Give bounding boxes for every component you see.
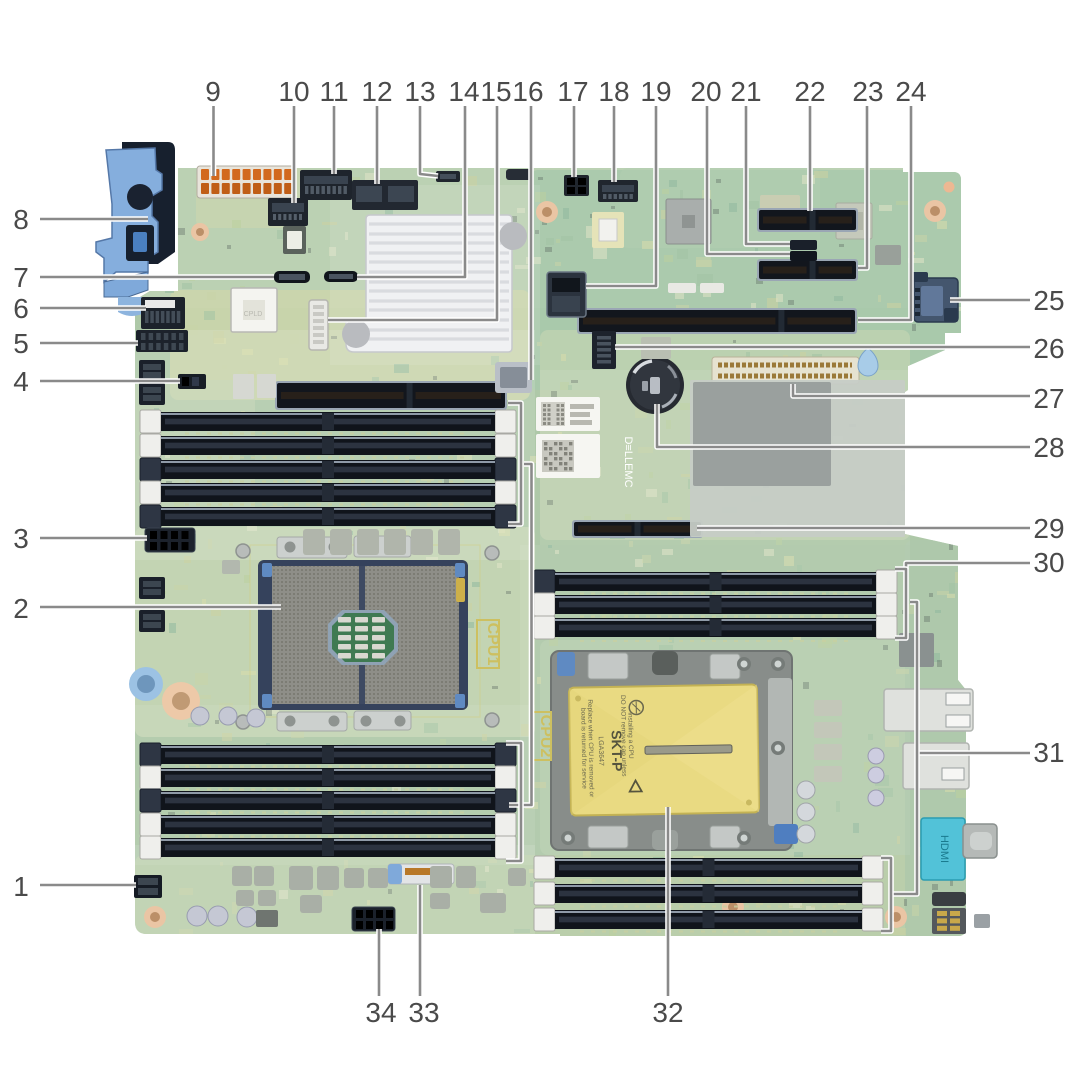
svg-text:CPU2: CPU2: [537, 715, 554, 758]
svg-text:LGA3647: LGA3647: [597, 736, 605, 766]
svg-text:28: 28: [1033, 432, 1064, 463]
svg-text:18: 18: [598, 76, 629, 107]
svg-text:3: 3: [13, 523, 29, 554]
svg-text:12: 12: [361, 76, 392, 107]
svg-text:32: 32: [652, 997, 683, 1028]
svg-text:21: 21: [730, 76, 761, 107]
svg-text:17: 17: [557, 76, 588, 107]
svg-text:4: 4: [13, 366, 29, 397]
svg-text:31: 31: [1033, 737, 1064, 768]
svg-text:33: 33: [408, 997, 439, 1028]
svg-text:1: 1: [13, 871, 29, 902]
svg-text:25: 25: [1033, 285, 1064, 316]
svg-text:5: 5: [13, 328, 29, 359]
svg-text:19: 19: [640, 76, 671, 107]
svg-text:board is returned for service: board is returned for service: [579, 708, 587, 789]
svg-text:23: 23: [852, 76, 883, 107]
svg-text:22: 22: [794, 76, 825, 107]
svg-text:24: 24: [895, 76, 926, 107]
svg-text:installing a CPU: installing a CPU: [626, 712, 634, 759]
svg-text:CPU1: CPU1: [484, 623, 501, 666]
svg-text:26: 26: [1033, 333, 1064, 364]
svg-text:D≡LLEMC: D≡LLEMC: [622, 436, 634, 487]
svg-text:30: 30: [1033, 547, 1064, 578]
svg-text:34: 34: [365, 997, 396, 1028]
svg-text:8: 8: [13, 204, 29, 235]
svg-text:2: 2: [13, 593, 29, 624]
svg-text:11: 11: [319, 76, 348, 107]
svg-text:14: 14: [448, 76, 479, 107]
svg-text:20: 20: [690, 76, 721, 107]
svg-text:HDMI: HDMI: [938, 835, 950, 863]
svg-text:CPLD: CPLD: [244, 311, 263, 318]
svg-text:29: 29: [1033, 513, 1064, 544]
svg-text:7: 7: [13, 262, 29, 293]
svg-text:9: 9: [205, 76, 221, 107]
svg-text:13: 13: [404, 76, 435, 107]
svg-text:6: 6: [13, 293, 29, 324]
svg-text:27: 27: [1033, 383, 1064, 414]
svg-text:15: 15: [480, 76, 511, 107]
svg-text:16: 16: [512, 76, 543, 107]
svg-text:DO NOT remove cap unless: DO NOT remove cap unless: [619, 695, 627, 777]
svg-text:10: 10: [278, 76, 309, 107]
